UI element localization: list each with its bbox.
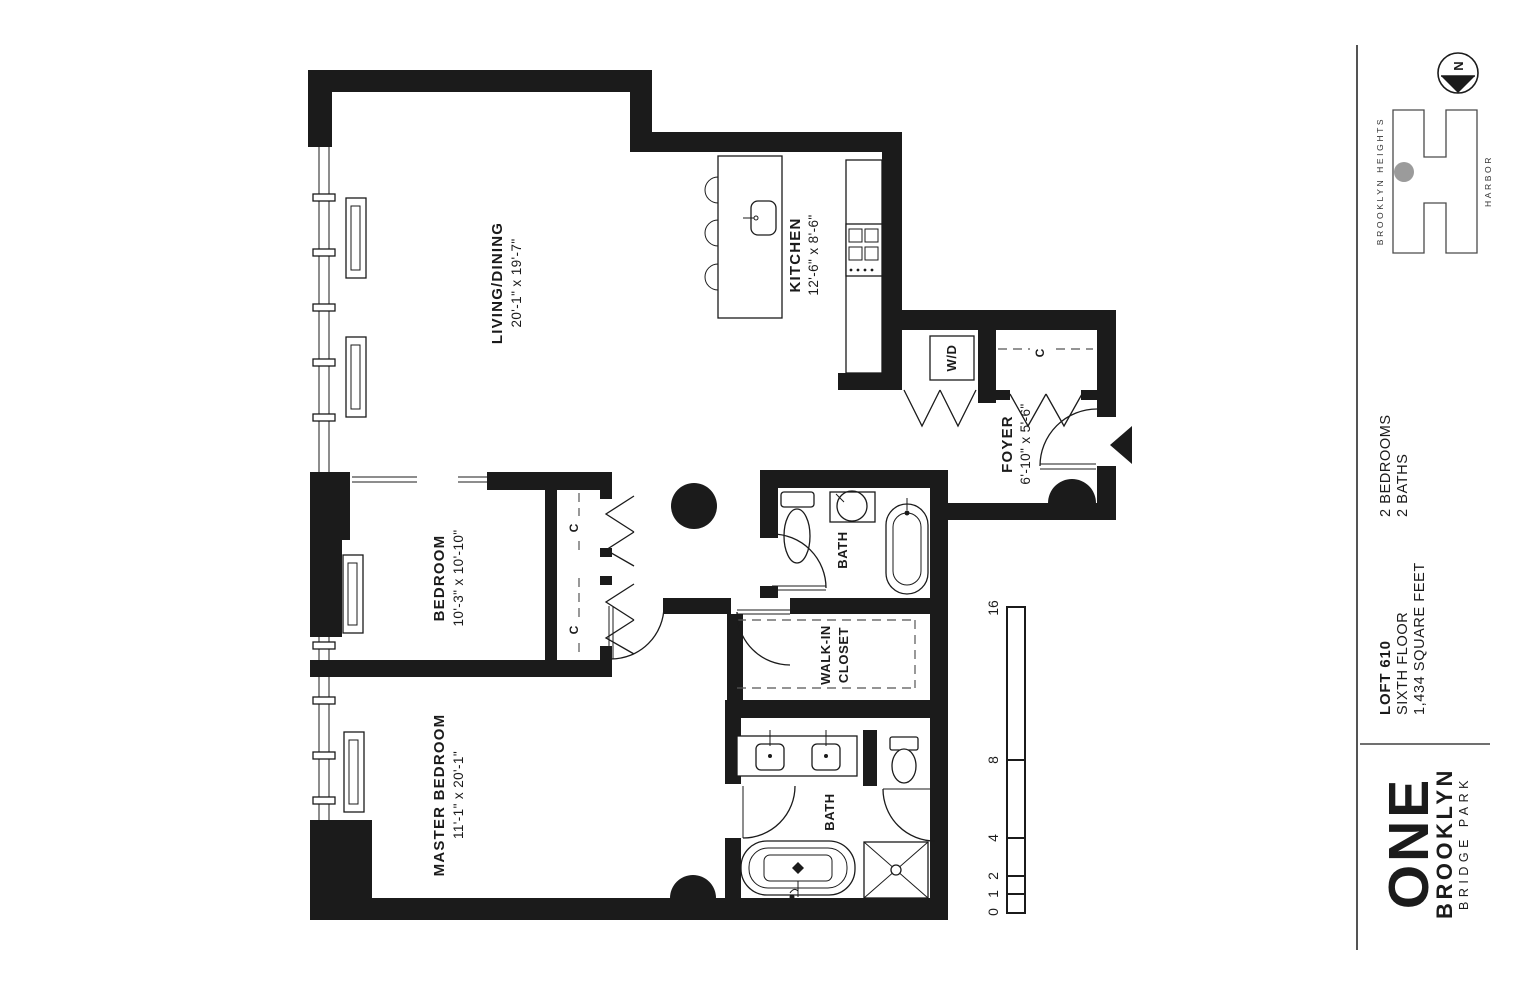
compass-north-label: N <box>1451 61 1466 70</box>
toilet-tank <box>781 492 814 507</box>
walk-in-closet-label-1: WALK-IN <box>818 625 833 685</box>
unit-area: 1,434 SQUARE FEET <box>1412 562 1428 715</box>
foyer-label: FOYER <box>999 415 1016 473</box>
unit-baths: 2 BATHS <box>1395 453 1411 517</box>
walk-in-closet-label-2: CLOSET <box>836 627 851 683</box>
bedroom-label: BEDROOM <box>431 535 448 622</box>
harbor-label: HARBOR <box>1483 155 1493 207</box>
unit-bedrooms: 2 BEDROOMS <box>1378 414 1394 517</box>
cooktop <box>846 224 882 276</box>
master-bedroom-door <box>611 606 664 659</box>
brand-logo: ONE BROOKLYN BRIDGE PARK <box>1377 767 1471 919</box>
location-dot <box>1394 162 1414 182</box>
scale-bar: 0 1 2 4 8 16 <box>985 600 1025 916</box>
stool <box>705 264 718 290</box>
compass-icon: N <box>1438 53 1478 93</box>
scale-4: 4 <box>985 834 1001 842</box>
half-column-master <box>670 875 716 898</box>
unit-summary: 2 BEDROOMS 2 BATHS <box>1378 414 1411 517</box>
entry-arrow-icon <box>1110 426 1132 464</box>
unit-name: LOFT 610 <box>1377 640 1394 715</box>
brand-bridge-park-label: BRIDGE PARK <box>1457 776 1471 910</box>
living-dining-dims: 20'-1" x 19'-7" <box>509 238 524 327</box>
scale-8: 8 <box>985 756 1001 764</box>
scale-0: 0 <box>985 908 1001 916</box>
floorplan-sheet: LIVING/DINING 20'-1" x 19'-7" KITCHEN 12… <box>0 0 1536 994</box>
master-bedroom-label: MASTER BEDROOM <box>431 714 448 877</box>
stool <box>705 177 718 203</box>
toilet-bowl <box>892 749 916 783</box>
living-dining-label: LIVING/DINING <box>489 222 506 344</box>
kitchen-island <box>718 156 782 318</box>
master-bath-door <box>743 786 795 838</box>
toilet-tank <box>890 737 918 750</box>
unit-title-block: LOFT 610 SIXTH FLOOR 1,434 SQUARE FEET <box>1377 562 1428 715</box>
info-panel: N BROOKLYN HEIGHTS HARBOR 2 BEDROOMS 2 B… <box>1357 45 1493 950</box>
upper-bath-fixtures <box>781 491 928 594</box>
brand-brooklyn-label: BROOKLYN <box>1432 767 1457 919</box>
round-column <box>671 483 717 529</box>
kitchen-label: KITCHEN <box>787 217 804 292</box>
washer-dryer-label: W/D <box>944 344 959 371</box>
upper-bath-label: BATH <box>835 531 850 569</box>
bedroom-dims: 10'-3" x 10'-10" <box>451 530 466 627</box>
sliding-partitions <box>352 477 487 482</box>
wc-door <box>883 789 935 841</box>
half-column-foyer <box>1048 479 1096 503</box>
closet-label: C <box>567 523 581 532</box>
master-bedroom-dims: 11'-1" x 20'-1" <box>451 751 466 839</box>
scale-16: 16 <box>985 600 1001 616</box>
bathtub <box>886 504 928 594</box>
brooklyn-heights-label: BROOKLYN HEIGHTS <box>1375 117 1385 245</box>
foyer-dims: 6'-10" x 5'-6" <box>1018 403 1033 484</box>
master-bath-label: BATH <box>822 793 837 831</box>
island-sink <box>751 201 776 235</box>
closet-label: C <box>567 625 581 634</box>
scale-2: 2 <box>985 872 1001 880</box>
unit-floor: SIXTH FLOOR <box>1395 612 1411 715</box>
closet-label: C <box>1033 348 1047 357</box>
floor-plan-svg: LIVING/DINING 20'-1" x 19'-7" KITCHEN 12… <box>0 0 1536 994</box>
scale-1: 1 <box>985 890 1001 898</box>
building-logo: BROOKLYN HEIGHTS HARBOR <box>1375 110 1493 253</box>
stool <box>705 220 718 246</box>
kitchen-dims: 12'-6" x 8'-6" <box>806 214 821 295</box>
